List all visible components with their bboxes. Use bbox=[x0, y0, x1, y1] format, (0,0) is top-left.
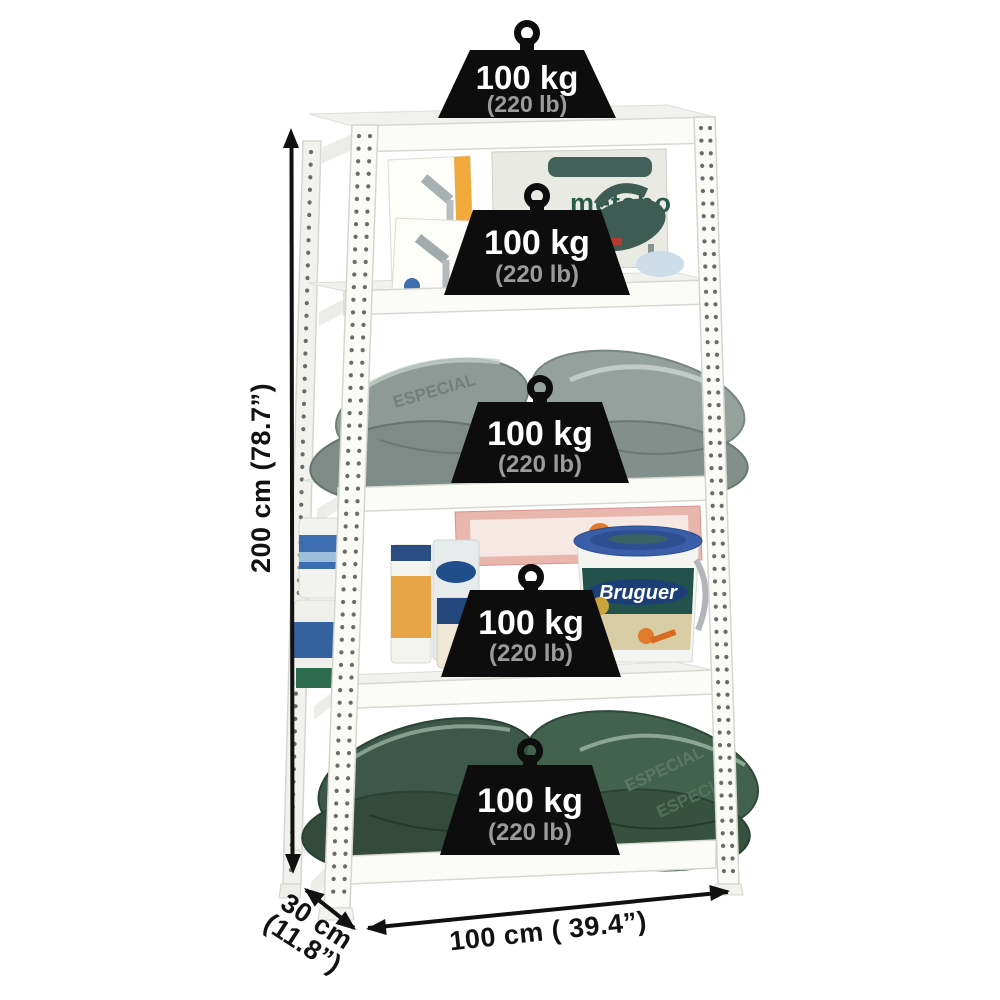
bruguer-brand-text: Bruguer bbox=[599, 582, 678, 604]
width-dimension: 100 cm ( 39.4”) bbox=[365, 883, 731, 956]
capacity-lb-label: (220 lb) bbox=[498, 451, 582, 478]
width-label: 100 cm ( 39.4”) bbox=[448, 906, 648, 957]
capacity-lb-label: (220 lb) bbox=[487, 91, 568, 117]
height-dimension: 200 cm (78.7”) bbox=[246, 128, 301, 874]
side-rail-2 bbox=[319, 299, 344, 326]
capacity-badge-top: 100 kg (220 lb) bbox=[438, 24, 616, 119]
arrow-left-icon bbox=[365, 919, 386, 937]
height-arrow-line bbox=[292, 142, 293, 860]
capacity-lb-label: (220 lb) bbox=[489, 640, 573, 667]
capacity-kg-label: 100 kg bbox=[478, 604, 584, 642]
metal-can-logo bbox=[436, 561, 476, 583]
metabo-case-handle bbox=[548, 157, 652, 177]
tall-can-label bbox=[391, 576, 431, 638]
arrow-up-icon bbox=[283, 128, 299, 148]
side-rail-4 bbox=[314, 692, 332, 720]
side-rail-1 bbox=[321, 134, 352, 164]
capacity-kg-label: 100 kg bbox=[477, 782, 583, 820]
weight-neck bbox=[520, 38, 534, 52]
rear-left-post bbox=[283, 141, 321, 884]
capacity-kg-label: 100 kg bbox=[487, 415, 593, 453]
shelving-rack-scene: metabo ESPECIAL bbox=[0, 0, 1000, 1000]
product-image: metabo ESPECIAL bbox=[0, 0, 1000, 1000]
capacity-lb-label: (220 lb) bbox=[495, 261, 579, 288]
tall-can-top-band bbox=[391, 545, 431, 561]
bruguer-lid-center bbox=[608, 534, 668, 544]
capacity-lb-label: (220 lb) bbox=[488, 819, 572, 846]
capacity-kg-label: 100 kg bbox=[484, 224, 590, 262]
plastic-wrap bbox=[636, 251, 684, 277]
height-label: 200 cm (78.7”) bbox=[246, 383, 276, 573]
